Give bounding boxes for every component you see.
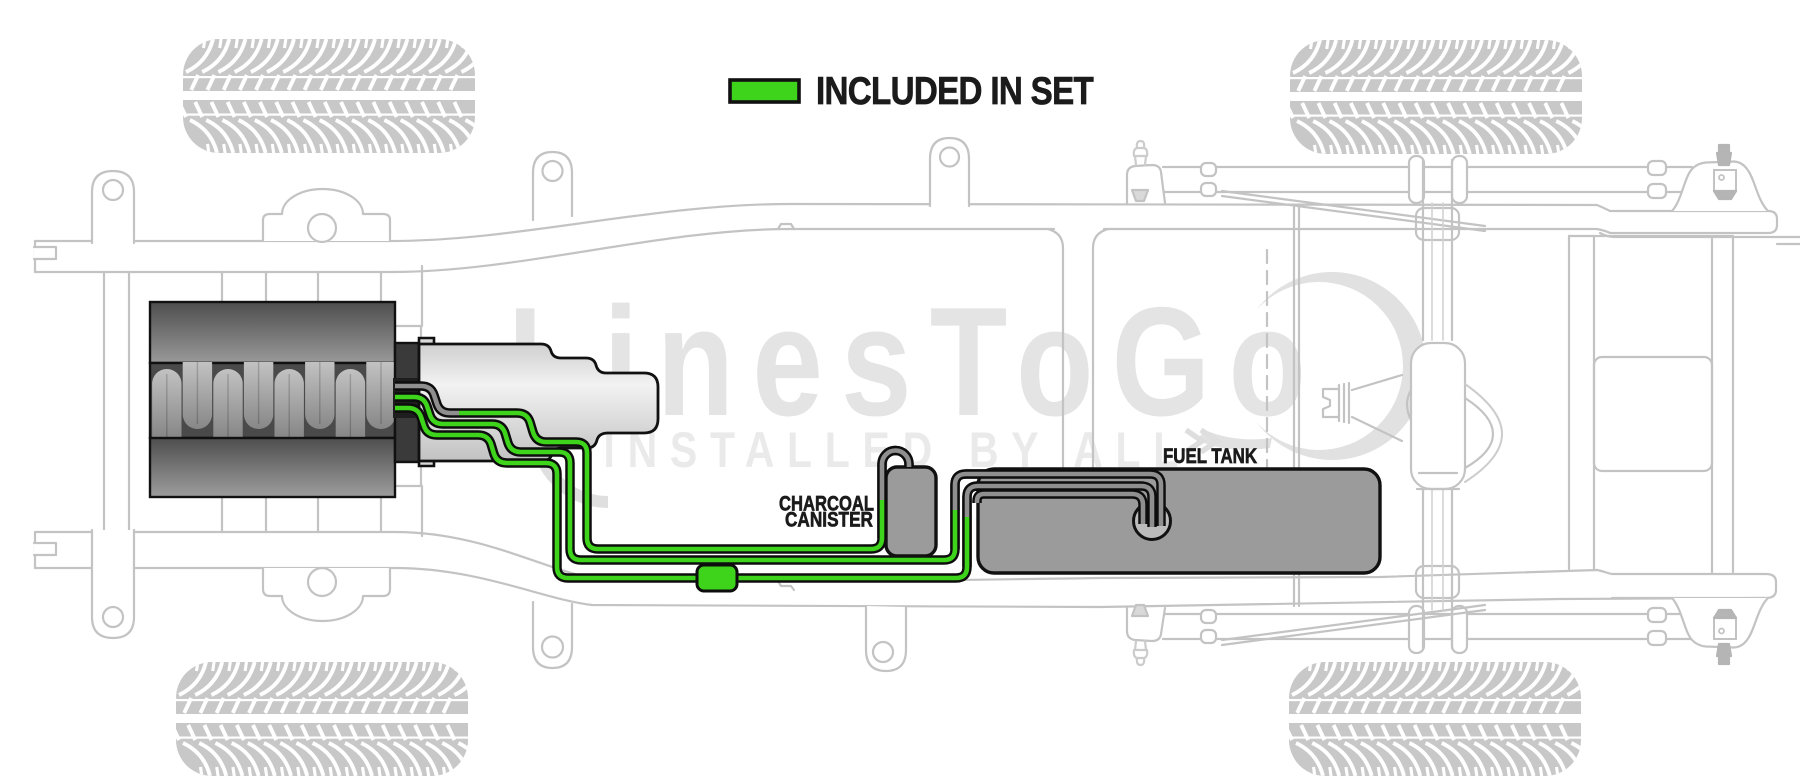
svg-text:FUEL TANK: FUEL TANK xyxy=(1163,444,1257,468)
svg-text:INCLUDED IN SET: INCLUDED IN SET xyxy=(816,68,1094,112)
svg-text:CANISTER: CANISTER xyxy=(785,508,873,532)
